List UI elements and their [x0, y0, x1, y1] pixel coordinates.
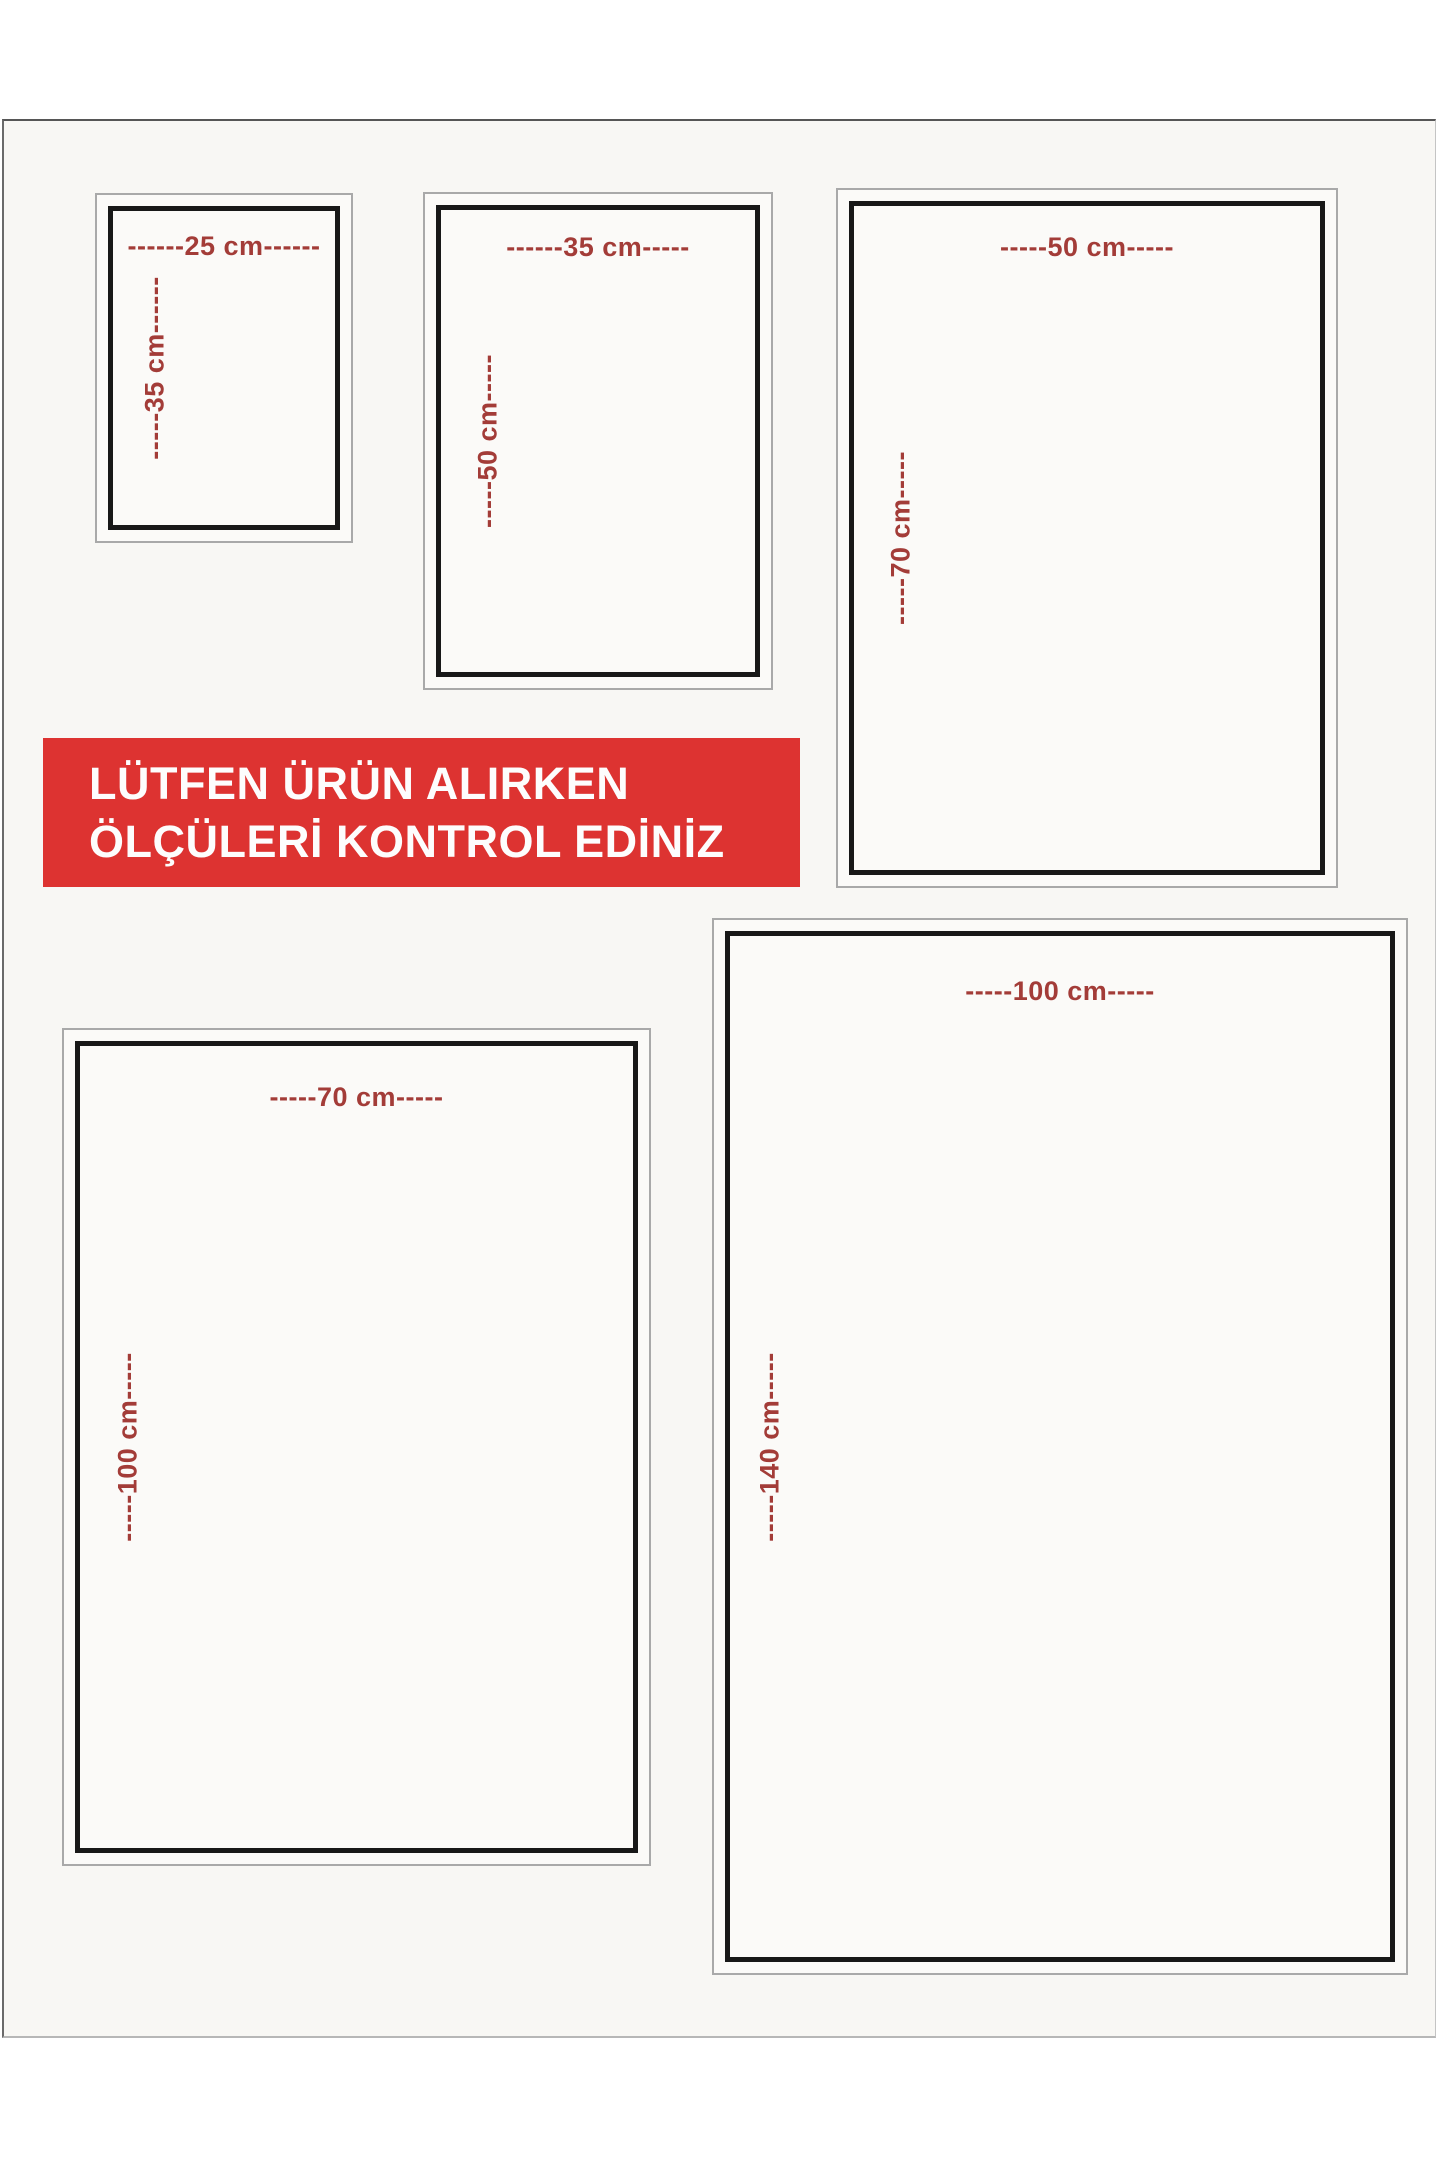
frame-inner-border: ------35 cm----- -----50 cm-----	[436, 205, 760, 677]
size-guide-canvas: ------25 cm------ -----35 cm------ -----…	[0, 0, 1440, 2160]
size-frame-35x50: ------35 cm----- -----50 cm-----	[423, 192, 773, 690]
warning-banner-line-1: LÜTFEN ÜRÜN ALIRKEN	[89, 755, 800, 813]
width-label: -----100 cm-----	[730, 976, 1390, 1007]
height-label: -----140 cm-----	[755, 1352, 786, 1542]
size-frame-25x35: ------25 cm------ -----35 cm------	[95, 193, 353, 543]
warning-banner-line-2: ÖLÇÜLERİ KONTROL EDİNİZ	[89, 813, 800, 871]
height-label: -----70 cm-----	[886, 451, 917, 625]
height-label: -----35 cm------	[140, 276, 171, 459]
size-frame-50x70: -----50 cm----- -----70 cm-----	[836, 188, 1338, 888]
width-label: ------35 cm-----	[441, 232, 755, 263]
frame-inner-border: ------25 cm------ -----35 cm------	[108, 206, 340, 530]
width-label: ------25 cm------	[113, 231, 335, 262]
height-label: -----50 cm-----	[473, 354, 504, 528]
warning-banner: LÜTFEN ÜRÜN ALIRKEN ÖLÇÜLERİ KONTROL EDİ…	[43, 738, 800, 887]
size-frame-70x100: -----70 cm----- -----100 cm-----	[62, 1028, 651, 1866]
frame-inner-border: -----50 cm----- -----70 cm-----	[849, 201, 1325, 875]
width-label: -----50 cm-----	[854, 232, 1320, 263]
size-frame-100x140: -----100 cm----- -----140 cm-----	[712, 918, 1408, 1975]
frame-inner-border: -----70 cm----- -----100 cm-----	[75, 1041, 638, 1853]
width-label: -----70 cm-----	[80, 1082, 633, 1113]
height-label: -----100 cm-----	[113, 1352, 144, 1542]
frame-inner-border: -----100 cm----- -----140 cm-----	[725, 931, 1395, 1962]
